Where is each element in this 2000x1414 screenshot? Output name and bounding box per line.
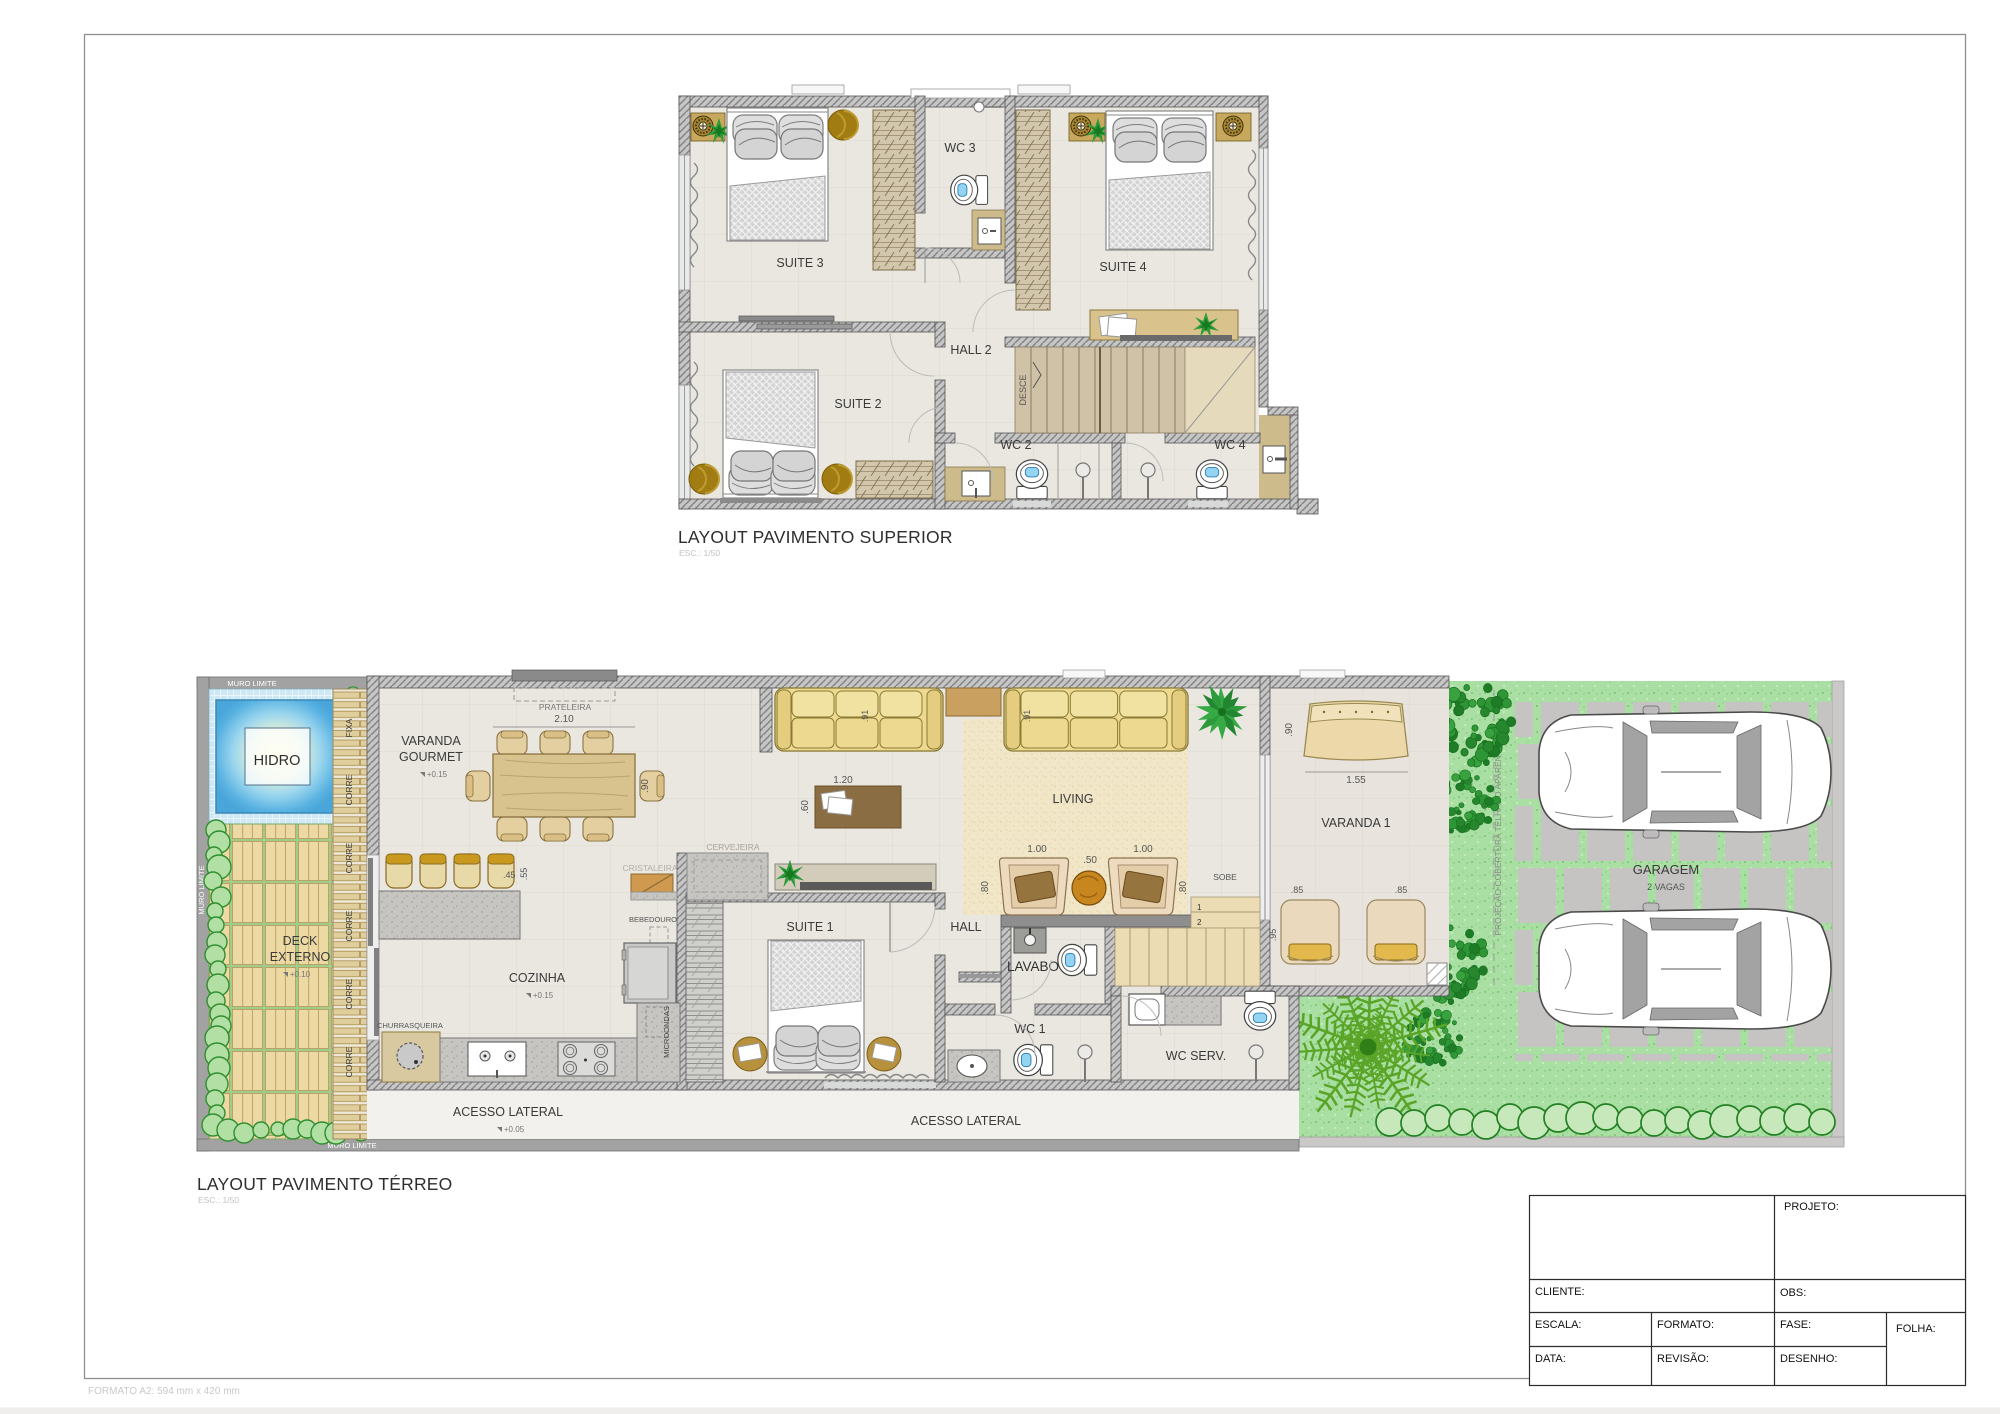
svg-text:.91: .91 (860, 710, 870, 723)
svg-text:CORRE: CORRE (344, 774, 354, 805)
svg-text:LIVING: LIVING (1053, 792, 1094, 806)
svg-text:REVISÃO:: REVISÃO: (1657, 1352, 1709, 1365)
svg-text:EXTERNO: EXTERNO (270, 950, 331, 964)
svg-text:.91: .91 (1022, 710, 1032, 723)
svg-text:DESENHO:: DESENHO: (1780, 1353, 1837, 1365)
svg-text:.95: .95 (1268, 929, 1278, 942)
svg-text:FOLHA:: FOLHA: (1896, 1323, 1936, 1335)
svg-text:WC 1: WC 1 (1014, 1022, 1045, 1036)
svg-text:.60: .60 (800, 800, 811, 814)
svg-text:MICROONDAS: MICROONDAS (662, 1006, 671, 1058)
svg-text:DESCE: DESCE (1018, 374, 1028, 405)
svg-text:WC 4: WC 4 (1214, 438, 1245, 452)
svg-text:1.00: 1.00 (1027, 844, 1047, 855)
svg-text:SUITE 4: SUITE 4 (1099, 260, 1146, 274)
svg-text:OBS:: OBS: (1780, 1287, 1806, 1299)
svg-text:DECK: DECK (283, 934, 318, 948)
svg-text:+0.15: +0.15 (533, 991, 554, 1000)
svg-text:ACESSO LATERAL: ACESSO LATERAL (453, 1105, 563, 1119)
svg-text:SUITE 3: SUITE 3 (776, 256, 823, 270)
svg-text:.85: .85 (1395, 885, 1408, 895)
svg-text:CORRE: CORRE (344, 842, 354, 873)
svg-text:SUITE 2: SUITE 2 (834, 397, 881, 411)
svg-text:HALL: HALL (950, 920, 981, 934)
svg-text:VARANDA 1: VARANDA 1 (1321, 816, 1390, 830)
svg-text:COZINHA: COZINHA (509, 971, 566, 985)
svg-text:FORMATO:: FORMATO: (1657, 1319, 1714, 1331)
svg-text:WC 2: WC 2 (1000, 438, 1031, 452)
svg-text:+0.15: +0.15 (427, 770, 448, 779)
svg-text:CRISTALEIRA: CRISTALEIRA (622, 863, 677, 873)
svg-text:FORMATO A2: 594 mm x 420 mm: FORMATO A2: 594 mm x 420 mm (88, 1386, 240, 1397)
svg-text:2: 2 (1197, 918, 1202, 927)
svg-text:HIDRO: HIDRO (254, 753, 301, 769)
svg-text:CERVEJEIRA: CERVEJEIRA (706, 842, 760, 852)
svg-text:1: 1 (1197, 903, 1202, 912)
svg-text:.90: .90 (1284, 723, 1295, 737)
svg-text:LAYOUT PAVIMENTO SUPERIOR: LAYOUT PAVIMENTO SUPERIOR (678, 527, 953, 547)
svg-text:2 VAGAS: 2 VAGAS (1647, 882, 1685, 892)
svg-text:ACESSO LATERAL: ACESSO LATERAL (911, 1114, 1021, 1128)
svg-text:GARAGEM: GARAGEM (1633, 862, 1699, 877)
svg-text:PROJETO:: PROJETO: (1784, 1201, 1839, 1213)
svg-text:WC SERV.: WC SERV. (1166, 1049, 1226, 1063)
svg-text:MURO LIMITE: MURO LIMITE (227, 679, 276, 688)
svg-text:PROJEÇÃO COBERTURA TELHADO APA: PROJEÇÃO COBERTURA TELHADO APARENTE (1493, 744, 1503, 936)
svg-text:FASE:: FASE: (1780, 1319, 1811, 1331)
svg-text:ESCALA:: ESCALA: (1535, 1319, 1581, 1331)
svg-text:1.20: 1.20 (833, 775, 853, 786)
svg-text:BEBEDOURO: BEBEDOURO (629, 915, 677, 924)
svg-text:ESC.: 1/50: ESC.: 1/50 (679, 548, 720, 558)
svg-text:LAYOUT PAVIMENTO TÉRREO: LAYOUT PAVIMENTO TÉRREO (197, 1174, 453, 1194)
svg-text:+0.10: +0.10 (290, 970, 311, 979)
svg-text:CORRE: CORRE (344, 1046, 354, 1077)
svg-text:PRATELEIRA: PRATELEIRA (539, 702, 592, 712)
svg-text:2.10: 2.10 (554, 714, 574, 725)
svg-text:FIXA: FIXA (344, 718, 354, 737)
svg-text:+0.05: +0.05 (504, 1125, 525, 1134)
svg-text:DATA:: DATA: (1535, 1353, 1566, 1365)
svg-text:.50: .50 (1083, 855, 1097, 866)
svg-text:1.55: 1.55 (1346, 775, 1366, 786)
svg-text:CHURRASQUEIRA: CHURRASQUEIRA (377, 1021, 443, 1030)
svg-text:.55: .55 (519, 868, 529, 881)
svg-text:CORRE: CORRE (344, 978, 354, 1009)
svg-text:SOBE: SOBE (1213, 872, 1237, 882)
svg-text:CLIENTE:: CLIENTE: (1535, 1286, 1585, 1298)
svg-text:.85: .85 (1291, 885, 1304, 895)
svg-text:WC 3: WC 3 (944, 141, 975, 155)
svg-text:SUITE 1: SUITE 1 (786, 920, 833, 934)
svg-text:.80: .80 (1178, 881, 1189, 895)
svg-text:CORRE: CORRE (344, 910, 354, 941)
svg-text:.90: .90 (640, 779, 651, 793)
svg-text:GOURMET: GOURMET (399, 750, 463, 764)
svg-text:MURO LIMITE: MURO LIMITE (197, 865, 206, 914)
svg-text:VARANDA: VARANDA (401, 734, 461, 748)
svg-text:.45: .45 (503, 870, 516, 880)
svg-text:1.00: 1.00 (1133, 844, 1153, 855)
svg-text:ESC.: 1/50: ESC.: 1/50 (198, 1195, 239, 1205)
svg-text:.80: .80 (980, 881, 991, 895)
svg-text:HALL 2: HALL 2 (950, 343, 991, 357)
